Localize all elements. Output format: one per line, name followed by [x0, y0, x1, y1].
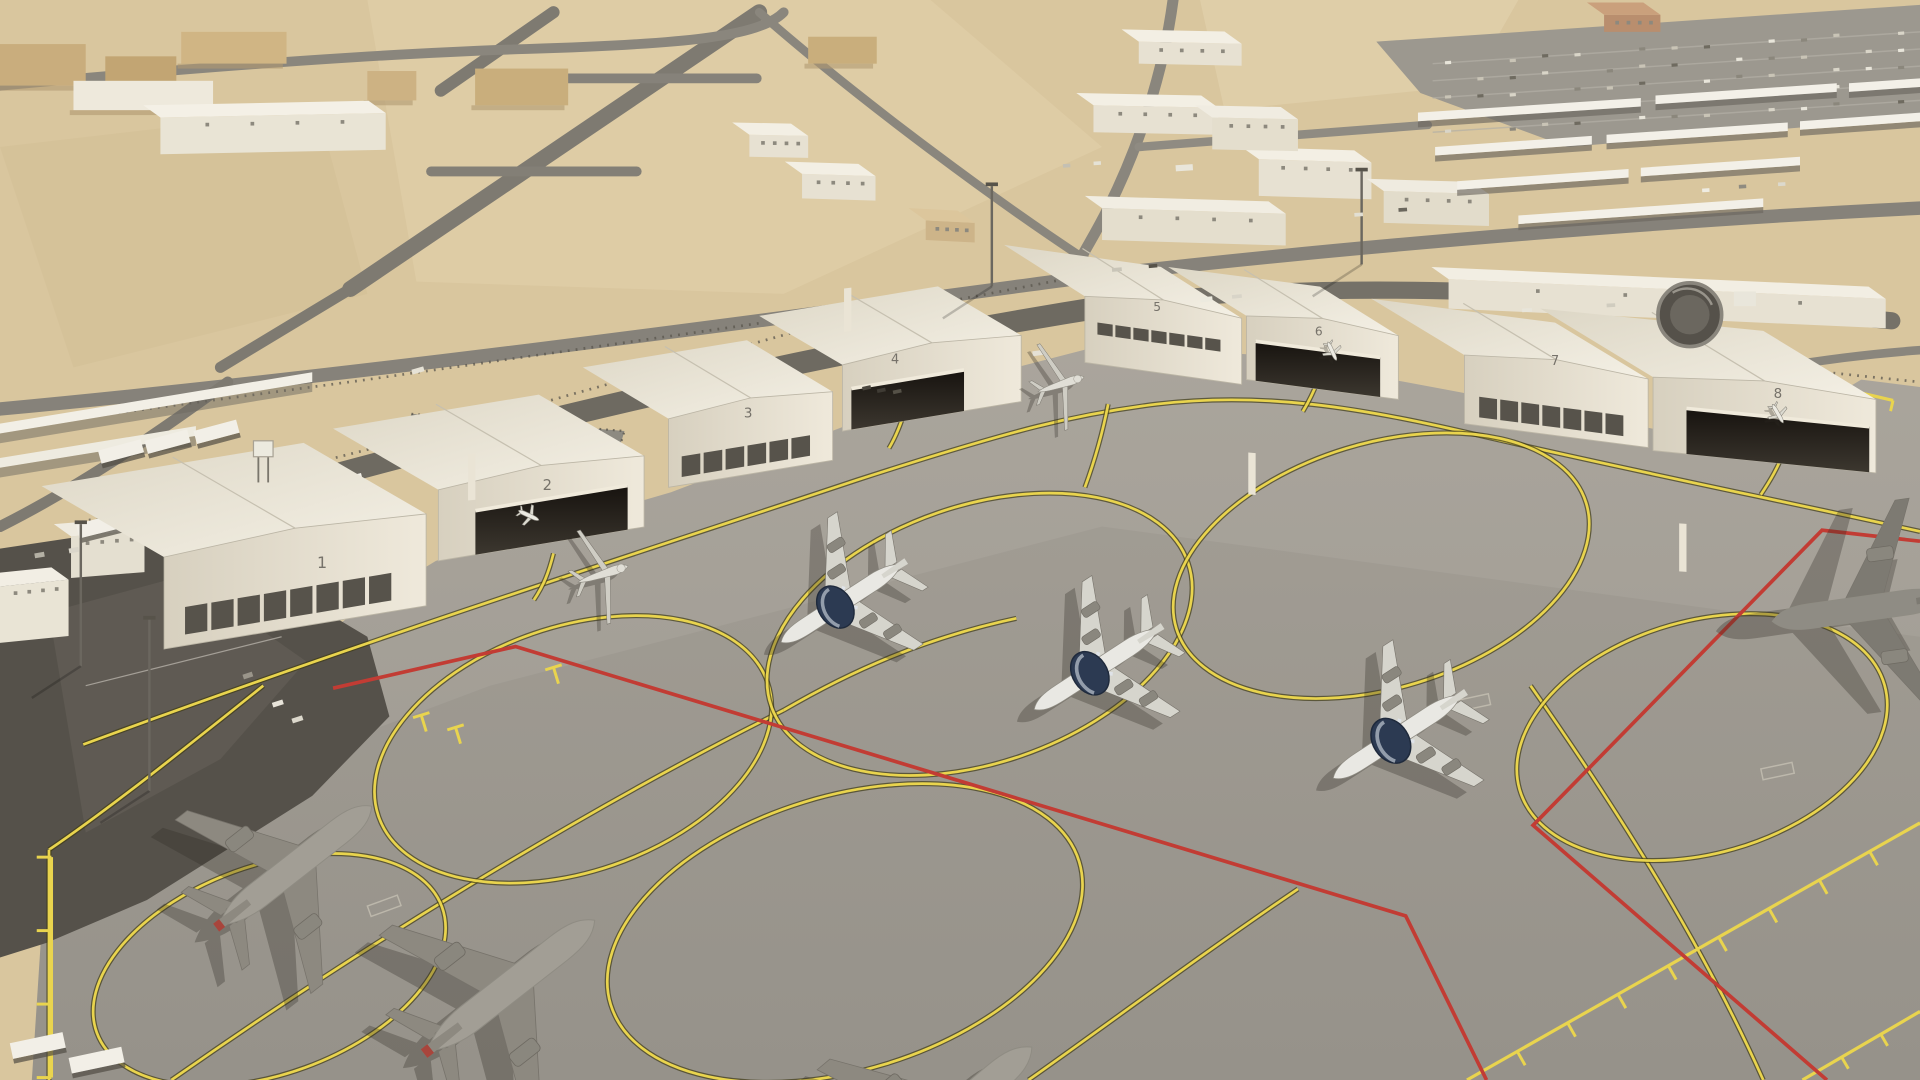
warehouse-wall — [1259, 159, 1372, 199]
window-dot — [773, 141, 777, 145]
window-dot — [965, 228, 969, 232]
window-dot — [817, 180, 821, 184]
door-pillar — [468, 453, 475, 500]
window-dot — [86, 541, 90, 545]
dock-door — [726, 446, 745, 470]
window-dot — [945, 228, 949, 232]
block-shadow — [804, 64, 873, 69]
window-dot — [785, 142, 789, 146]
dock-door — [748, 442, 767, 466]
parked-car — [1801, 55, 1807, 59]
parked-car — [1639, 47, 1645, 51]
ground-vehicle — [1176, 164, 1194, 171]
dock-door — [211, 599, 233, 630]
parked-car — [1542, 71, 1548, 75]
tank-shed — [1734, 291, 1756, 306]
window-dot — [1798, 301, 1802, 305]
warehouse-wall — [1212, 118, 1298, 152]
parked-car — [1898, 31, 1904, 35]
hangar-number-label: 2 — [543, 477, 552, 494]
dock-door — [1097, 323, 1112, 337]
parked-car — [1866, 50, 1872, 54]
block-shadow — [471, 105, 564, 110]
dock-door — [1479, 397, 1497, 420]
window-dot — [1627, 21, 1631, 25]
parked-car — [1833, 68, 1839, 72]
ground-vehicle — [1702, 188, 1710, 192]
parked-car — [1833, 102, 1839, 106]
dock-door — [343, 577, 365, 608]
parked-car — [1574, 121, 1580, 125]
block-shadow — [178, 64, 283, 69]
parked-car — [1769, 56, 1775, 60]
dock-door — [1521, 402, 1539, 425]
parked-car — [1639, 64, 1645, 68]
window-dot — [1200, 49, 1204, 53]
desert-compound-block — [808, 37, 877, 64]
parked-car — [1769, 108, 1775, 112]
window-dot — [1649, 21, 1653, 25]
window-dot — [831, 181, 835, 185]
dock-door — [185, 603, 207, 634]
window-dot — [1176, 216, 1180, 220]
window-dot — [1193, 113, 1197, 117]
parked-car — [1445, 129, 1451, 133]
parked-car — [1704, 45, 1710, 49]
dock-door — [1606, 413, 1624, 436]
window-dot — [14, 591, 18, 595]
dock-door — [704, 450, 723, 474]
window-dot — [1168, 113, 1172, 117]
window-dot — [296, 121, 300, 125]
window-dot — [1143, 112, 1147, 116]
dock-door — [1169, 333, 1184, 347]
dock-door — [682, 453, 701, 477]
dock-door — [1584, 410, 1602, 433]
dock-door — [1187, 335, 1202, 349]
parked-car — [1704, 114, 1710, 118]
parked-car — [1542, 54, 1548, 58]
ground-vehicle — [1149, 264, 1158, 268]
window-dot — [955, 228, 959, 232]
ground-vehicle — [1778, 182, 1786, 186]
dock-door — [1115, 325, 1130, 339]
hangar-number-label: 3 — [744, 407, 753, 422]
window-dot — [1281, 166, 1285, 170]
ground-vehicle — [1607, 303, 1616, 307]
window-dot — [1264, 125, 1268, 129]
dock-door — [1500, 400, 1518, 423]
window-dot — [936, 227, 940, 231]
ground-vehicle — [1522, 308, 1532, 312]
warehouse-roof — [1122, 29, 1242, 43]
parked-car — [1639, 81, 1645, 85]
parked-car — [1769, 39, 1775, 43]
window-dot — [100, 540, 104, 544]
door-pillar — [1248, 452, 1255, 495]
door-pillar — [1679, 523, 1686, 572]
window-dot — [1426, 198, 1430, 202]
dock-door — [238, 595, 260, 626]
parked-car — [1607, 69, 1613, 73]
window-dot — [55, 587, 59, 591]
window-dot — [251, 122, 255, 126]
dock-door — [290, 586, 312, 617]
ground-vehicle — [1354, 212, 1363, 216]
window-dot — [205, 123, 209, 127]
window-dot — [1536, 289, 1540, 293]
dock-door — [1542, 405, 1560, 428]
warehouse-wall — [1102, 208, 1286, 245]
parked-car — [1736, 57, 1742, 61]
window-dot — [1281, 125, 1285, 129]
parked-car — [1639, 116, 1645, 120]
window-dot — [1212, 218, 1216, 222]
window-dot — [1249, 219, 1253, 223]
window-dot — [1159, 48, 1163, 52]
door-pillar — [844, 288, 851, 332]
hangar-number-label: 5 — [1153, 300, 1161, 314]
parked-car — [1671, 46, 1677, 50]
ground-vehicle — [1739, 185, 1747, 189]
window-dot — [1623, 293, 1627, 297]
ground-vehicle — [1398, 208, 1407, 212]
window-dot — [1447, 199, 1451, 203]
hangar-number-label: 6 — [1315, 325, 1323, 339]
warehouse-wall — [749, 135, 808, 158]
window-dot — [1405, 198, 1409, 202]
parked-car — [1671, 115, 1677, 119]
ground-vehicle — [1063, 164, 1071, 168]
dock-door — [1205, 338, 1220, 352]
parked-car — [1477, 94, 1483, 98]
hangar-number-label: 1 — [317, 553, 327, 572]
window-dot — [1247, 124, 1251, 128]
warehouse-wall — [1139, 42, 1242, 66]
parked-car — [1510, 127, 1516, 131]
parked-car — [1898, 49, 1904, 53]
window-dot — [1615, 21, 1619, 25]
parked-car — [1801, 107, 1807, 111]
dock-door — [791, 435, 810, 459]
window-dot — [1118, 112, 1122, 116]
window-dot — [27, 590, 31, 594]
window-dot — [861, 182, 865, 186]
parked-car — [1898, 66, 1904, 70]
dock-door — [316, 582, 338, 613]
warehouse-wall — [160, 113, 385, 154]
parked-car — [1866, 67, 1872, 71]
parked-car — [1510, 59, 1516, 63]
parked-car — [1510, 76, 1516, 80]
parked-car — [1607, 86, 1613, 90]
hangar-number-label: 8 — [1774, 387, 1783, 402]
ground-vehicle — [1093, 161, 1101, 165]
parked-car — [1898, 100, 1904, 104]
window-dot — [341, 120, 345, 124]
dock-door — [264, 590, 286, 621]
hangar-number-label: 7 — [1551, 354, 1559, 369]
dock-door — [1133, 328, 1148, 342]
block-shadow — [0, 86, 82, 91]
parked-car — [1704, 79, 1710, 83]
hangar-number-label: 4 — [891, 353, 899, 368]
parked-car — [1574, 53, 1580, 57]
window-dot — [1468, 200, 1472, 204]
airbase-3d-scene: 12345678 — [0, 0, 1920, 1080]
parked-car — [1445, 61, 1451, 65]
desert-compound-block — [475, 69, 568, 106]
window-dot — [41, 589, 45, 593]
window-dot — [115, 539, 119, 543]
desert-compound-block — [0, 44, 86, 86]
parked-car — [1671, 63, 1677, 67]
parked-car — [1542, 123, 1548, 127]
warehouse-wall — [1093, 105, 1218, 134]
parked-car — [1833, 34, 1839, 38]
parked-car — [1510, 93, 1516, 97]
dock-door — [1563, 408, 1581, 431]
airbase-render-canvas: 12345678 — [0, 0, 1920, 1080]
parked-car — [1769, 74, 1775, 78]
desert-compound-block — [367, 71, 416, 100]
window-dot — [846, 181, 850, 185]
window-dot — [761, 141, 765, 145]
window-dot — [1638, 21, 1642, 25]
parked-car — [1801, 38, 1807, 42]
window-dot — [1221, 49, 1225, 53]
window-dot — [1349, 168, 1353, 172]
parked-car — [1477, 77, 1483, 81]
window-dot — [1304, 167, 1308, 171]
window-dot — [1180, 49, 1184, 53]
parked-car — [1445, 95, 1451, 99]
window-dot — [796, 142, 800, 146]
dock-door — [369, 573, 391, 604]
window-dot — [1229, 124, 1233, 128]
window-dot — [1139, 215, 1143, 219]
parked-car — [1574, 87, 1580, 91]
dock-door — [1151, 330, 1166, 344]
dock-door — [769, 439, 788, 463]
desert-compound-block — [181, 32, 286, 64]
window-dot — [1326, 167, 1330, 171]
parked-car — [1736, 75, 1742, 79]
warehouse-wall — [802, 174, 875, 201]
